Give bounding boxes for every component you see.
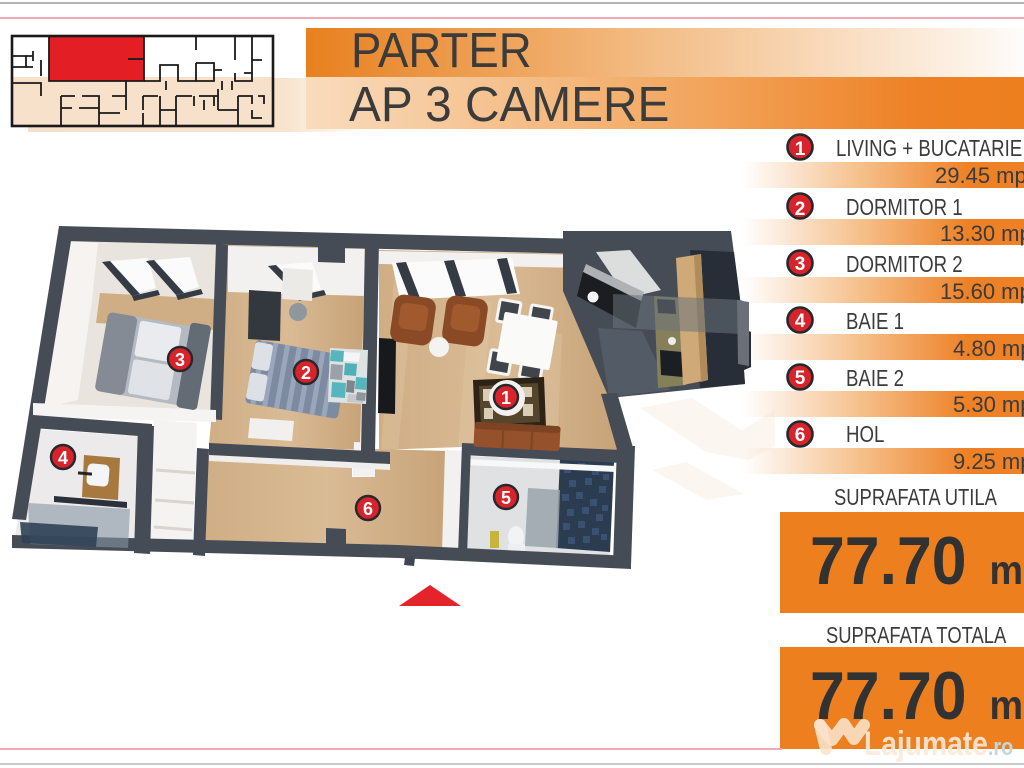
svg-text:4: 4	[58, 448, 68, 468]
svg-text:1: 1	[501, 388, 511, 408]
svg-text:6: 6	[363, 499, 373, 519]
svg-text:3: 3	[175, 350, 185, 370]
svg-text:2: 2	[301, 363, 311, 383]
svg-text:5: 5	[501, 488, 511, 508]
svg-text:Lajumate.ro: Lajumate.ro	[864, 725, 1013, 762]
